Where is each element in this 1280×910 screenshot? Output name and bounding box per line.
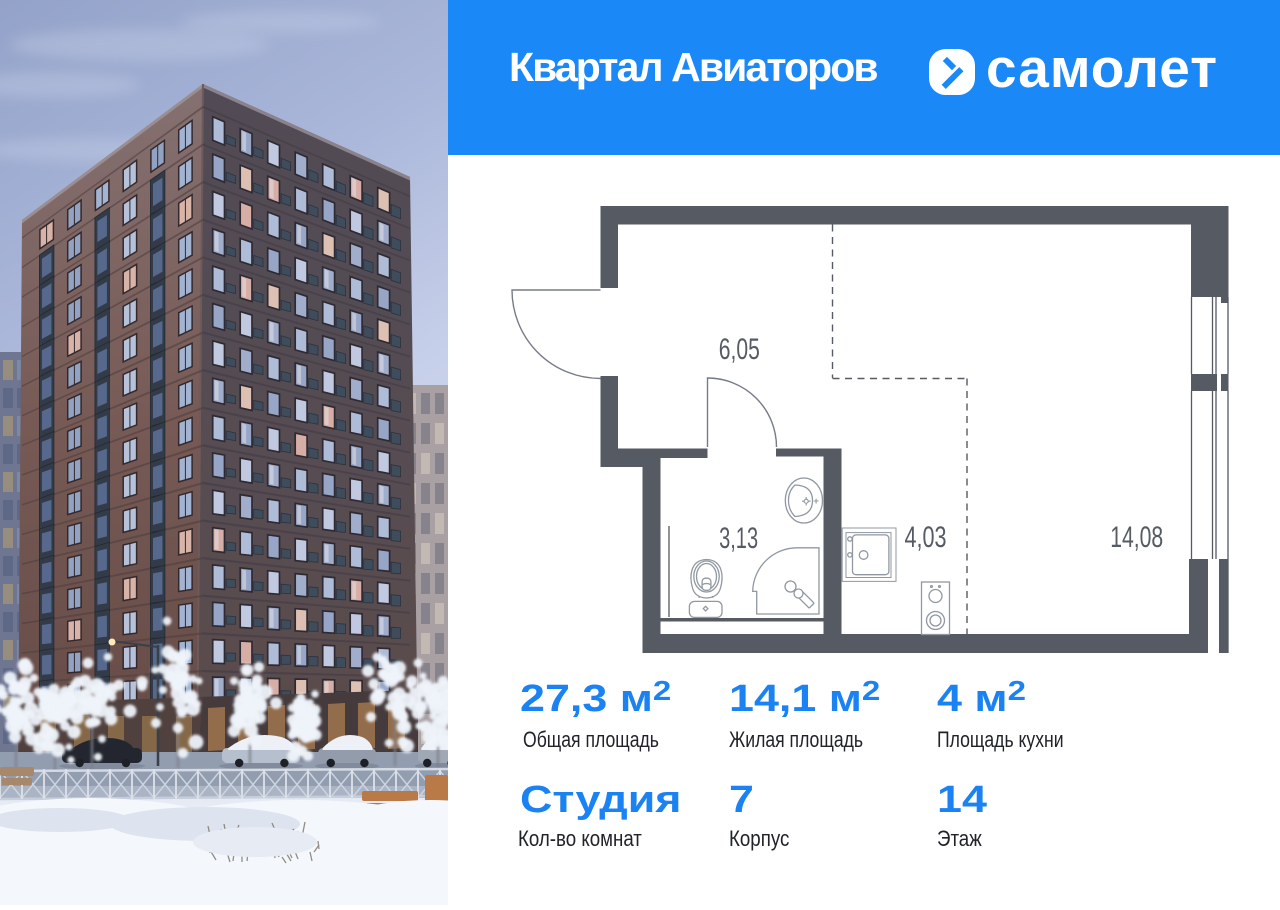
svg-text:3,13: 3,13 xyxy=(719,522,758,555)
svg-text:6,05: 6,05 xyxy=(719,333,760,366)
svg-text:4,03: 4,03 xyxy=(905,521,947,554)
svg-text:14,08: 14,08 xyxy=(1110,521,1163,554)
